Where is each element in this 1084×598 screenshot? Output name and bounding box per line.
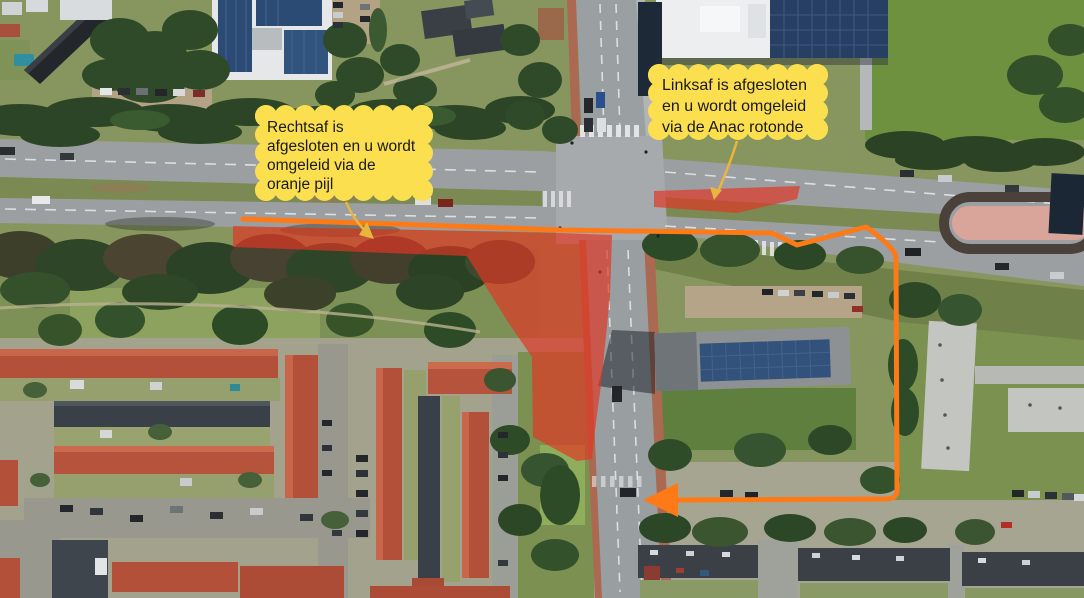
- callout-line: via de Anac rotonde: [662, 117, 828, 138]
- callout-line: afgesloten en u wordt: [267, 137, 433, 156]
- callout-line: oranje pijl: [267, 175, 433, 194]
- callout-rechtsaf: Rechtsaf is afgesloten en u wordt omgele…: [255, 105, 433, 201]
- aerial-basemap: [0, 0, 1084, 598]
- callout-line: en u wordt omgeleid: [662, 96, 828, 117]
- callout-linksaf-text: Linksaf is afgesloten en u wordt omgelei…: [648, 64, 828, 138]
- callout-line: Linksaf is afgesloten: [662, 75, 828, 96]
- callout-line: Rechtsaf is: [267, 118, 433, 137]
- callout-line: omgeleid via de: [267, 156, 433, 175]
- callout-linksaf: Linksaf is afgesloten en u wordt omgelei…: [648, 64, 828, 140]
- annotated-aerial-map: Rechtsaf is afgesloten en u wordt omgele…: [0, 0, 1084, 598]
- callout-rechtsaf-text: Rechtsaf is afgesloten en u wordt omgele…: [255, 105, 433, 194]
